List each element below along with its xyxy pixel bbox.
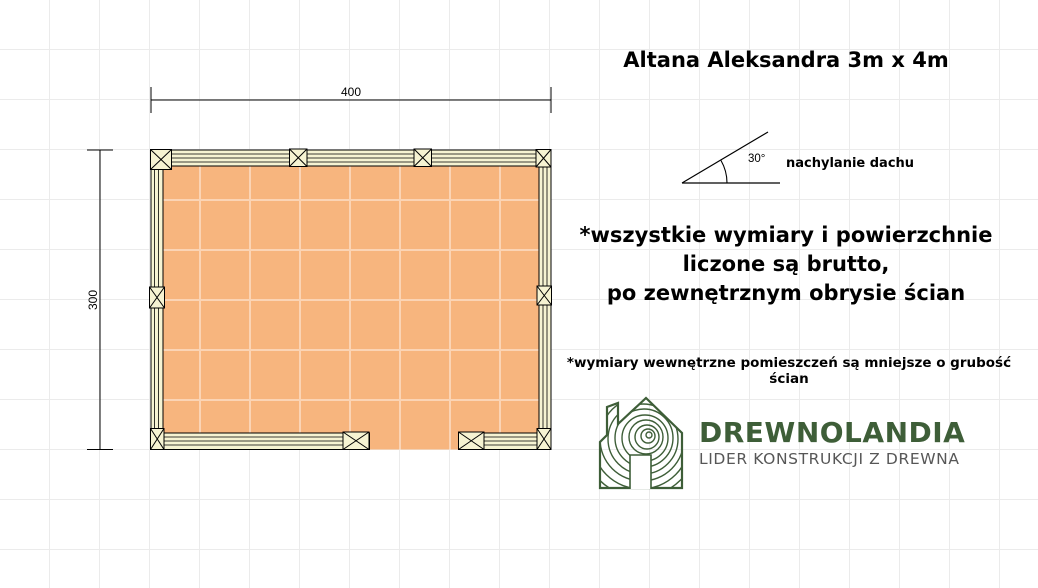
post-right-mid [537, 286, 552, 305]
post-corner-top-right [536, 150, 551, 168]
brand-text: DREWNOLANDIA LIDER KONSTRUKCJI Z DREWNA [699, 418, 965, 468]
brand-tagline: LIDER KONSTRUKCJI Z DREWNA [699, 450, 965, 468]
post-door-right [459, 432, 485, 450]
brand-name: DREWNOLANDIA [699, 418, 965, 448]
post-top-mid-1 [290, 149, 308, 167]
height-dimension-label: 300 [86, 290, 100, 310]
post-left-mid [150, 287, 165, 308]
wood-grain-house-icon [594, 395, 686, 491]
width-dimension-label: 400 [341, 85, 361, 99]
interior-dimensions-note: *wymiary wewnętrzne pomieszczeń są mniej… [552, 355, 1026, 387]
angle-arc [721, 161, 727, 184]
post-door-left [343, 432, 369, 450]
page-title: Altana Aleksandra 3m x 4m [570, 48, 1002, 72]
post-corner-top-left [151, 150, 172, 170]
brand-logo: DREWNOLANDIA LIDER KONSTRUKCJI Z DREWNA [594, 395, 965, 491]
roof-caption: nachylanie dachu [786, 156, 914, 171]
floor [163, 166, 539, 450]
post-corner-bottom-right [537, 429, 551, 450]
post-corner-bottom-left [151, 429, 165, 450]
roof-angle-label: 30° [748, 153, 765, 165]
post-top-mid-2 [414, 149, 432, 167]
house-door [630, 455, 651, 489]
roof-pitch-diagram: 30° nachylanie dachu [682, 132, 914, 183]
dimensions-disclaimer: *wszystkie wymiary i powierzchnie liczon… [556, 221, 1016, 308]
